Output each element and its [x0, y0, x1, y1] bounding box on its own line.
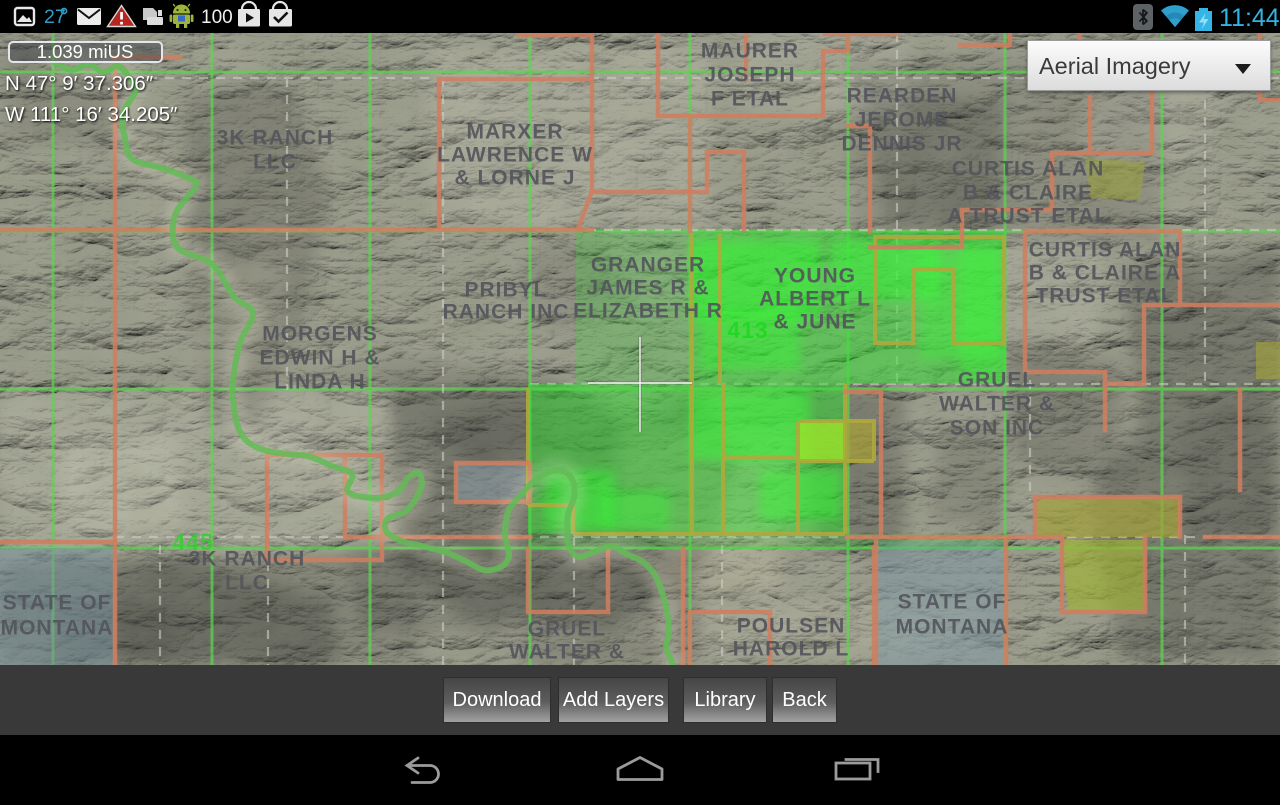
svg-text:JEROME: JEROME — [855, 109, 950, 132]
svg-text:JAMES R &: JAMES R & — [586, 277, 709, 300]
svg-text:1.039 miUS: 1.039 miUS — [37, 41, 134, 62]
svg-text:CURTIS ALAN: CURTIS ALAN — [1029, 239, 1182, 262]
svg-text:YOUNG: YOUNG — [774, 265, 856, 288]
svg-text:N 47° 9′ 37.306″: N 47° 9′ 37.306″ — [5, 72, 153, 95]
svg-text:GRUEL: GRUEL — [958, 369, 1037, 392]
svg-text:EDWIN H &: EDWIN H & — [260, 347, 381, 370]
svg-text:ELIZABETH R: ELIZABETH R — [573, 300, 723, 323]
svg-text:A TRUST ETAL: A TRUST ETAL — [947, 205, 1108, 228]
svg-text:MONTANA: MONTANA — [1, 617, 114, 640]
svg-text:POULSEN: POULSEN — [737, 615, 846, 638]
svg-text:ALBERT L: ALBERT L — [759, 288, 871, 311]
svg-text:B & CLAIRE A: B & CLAIRE A — [1029, 262, 1181, 285]
svg-text:WALTER &: WALTER & — [509, 641, 625, 664]
svg-text:& LORNE J: & LORNE J — [454, 167, 575, 190]
svg-text:LLC: LLC — [225, 572, 269, 595]
svg-text:& JUNE: & JUNE — [773, 311, 856, 334]
svg-text:CURTIS ALAN: CURTIS ALAN — [952, 158, 1105, 181]
svg-text:PRIBYL: PRIBYL — [464, 279, 547, 302]
svg-text:445: 445 — [172, 529, 213, 555]
svg-text:3K RANCH: 3K RANCH — [217, 127, 334, 150]
svg-text:GRANGER: GRANGER — [591, 254, 705, 277]
svg-text:STATE OF: STATE OF — [898, 591, 1007, 614]
svg-text:413: 413 — [727, 317, 768, 343]
svg-text:JOSEPH: JOSEPH — [704, 64, 795, 87]
svg-text:11:44: 11:44 — [1219, 4, 1280, 32]
svg-text:LAWRENCE W: LAWRENCE W — [437, 144, 593, 167]
svg-text:STATE OF: STATE OF — [3, 592, 112, 615]
svg-text:WALTER &: WALTER & — [939, 393, 1055, 416]
svg-text:DENNIS JR: DENNIS JR — [841, 133, 962, 156]
svg-text:REARDEN: REARDEN — [847, 85, 958, 108]
svg-text:100: 100 — [201, 7, 233, 28]
svg-text:SON INC: SON INC — [950, 417, 1045, 440]
svg-text:MARXER: MARXER — [466, 121, 563, 144]
svg-text:W 111° 16′ 34.205″: W 111° 16′ 34.205″ — [5, 103, 177, 126]
svg-text:MONTANA: MONTANA — [896, 616, 1009, 639]
svg-text:TRUST ETAL: TRUST ETAL — [1035, 285, 1174, 308]
svg-text:MAURER: MAURER — [701, 40, 799, 63]
svg-text:LINDA H: LINDA H — [274, 371, 365, 394]
svg-text:MORGENS: MORGENS — [262, 323, 378, 346]
svg-text:HAROLD L: HAROLD L — [733, 638, 850, 661]
svg-text:F ETAL: F ETAL — [711, 88, 789, 111]
svg-text:B & CLAIRE: B & CLAIRE — [963, 182, 1093, 205]
svg-text:LLC: LLC — [253, 151, 297, 174]
svg-text:RANCH INC: RANCH INC — [443, 301, 570, 324]
svg-text:GRUEL: GRUEL — [528, 618, 607, 641]
